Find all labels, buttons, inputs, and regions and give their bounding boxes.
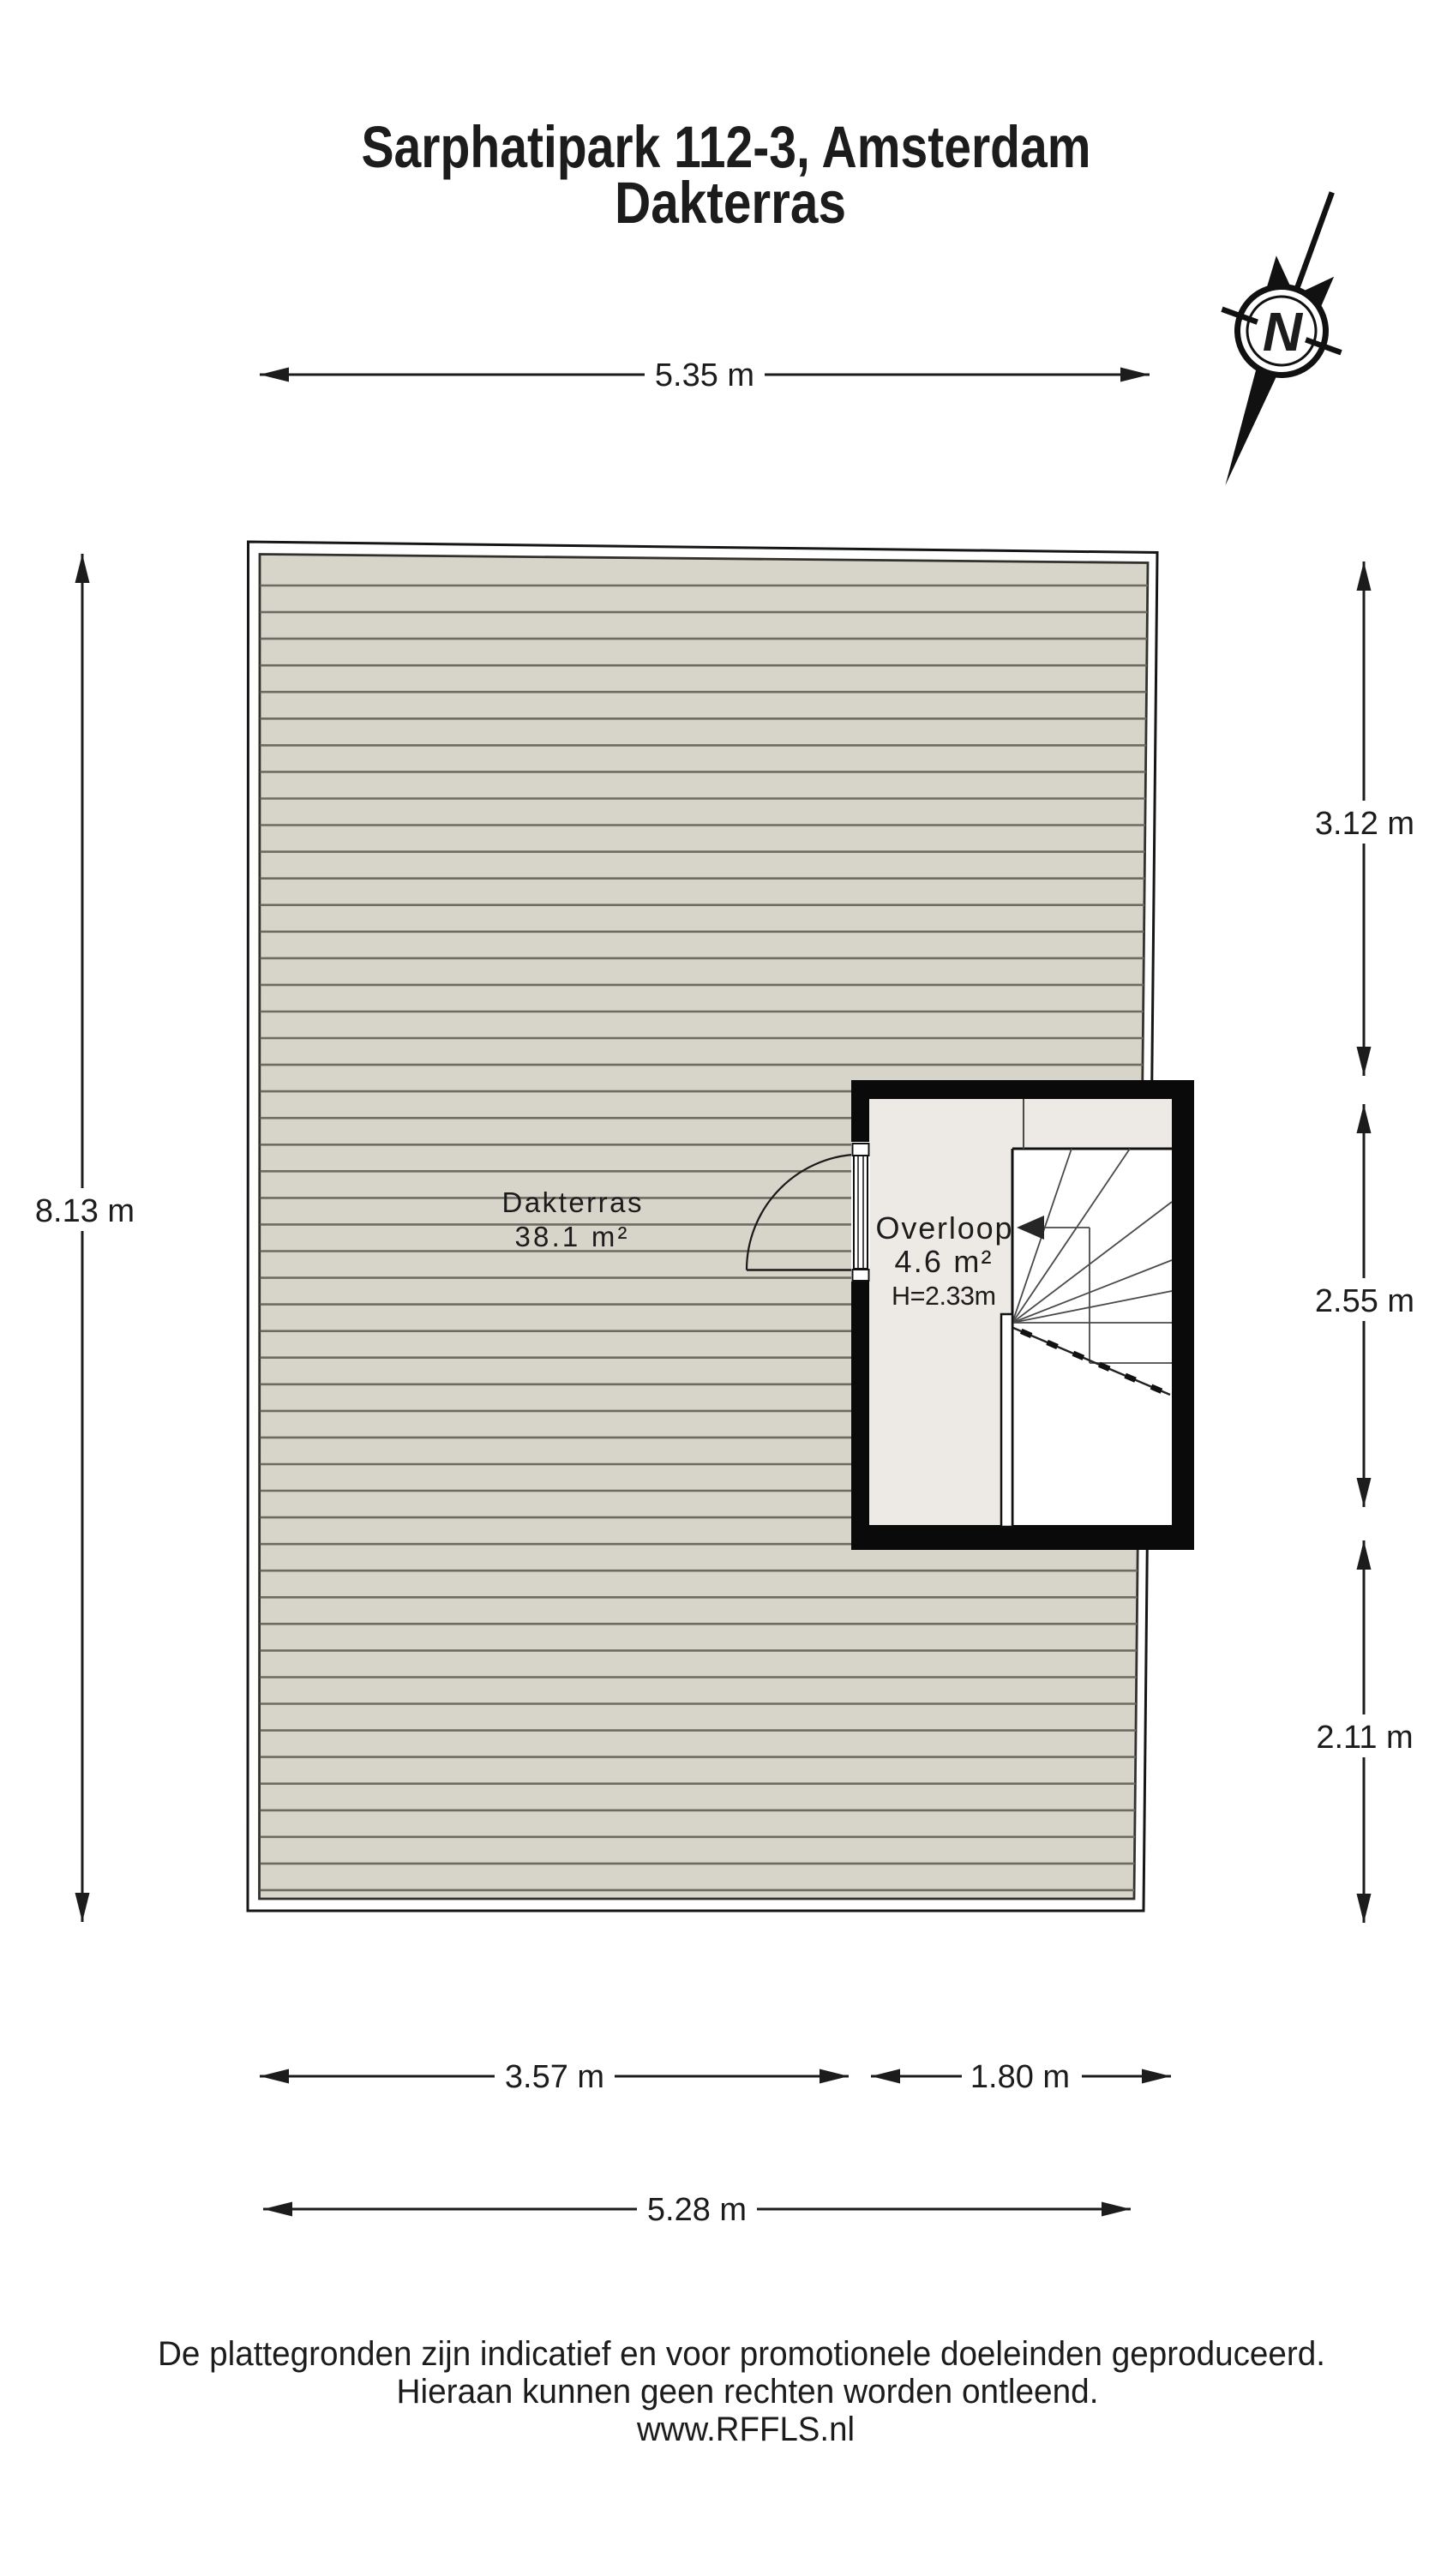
svg-text:3.12 m: 3.12 m (1315, 806, 1414, 842)
svg-text:2.11 m: 2.11 m (1316, 1720, 1413, 1756)
svg-text:2.55 m: 2.55 m (1315, 1283, 1414, 1319)
svg-text:Hieraan kunnen geen rechten wo: Hieraan kunnen geen rechten worden ontle… (397, 2373, 1099, 2411)
svg-text:Dakterras: Dakterras (615, 170, 846, 236)
svg-text:H=2.33m: H=2.33m (892, 1282, 996, 1311)
svg-text:5.28 m: 5.28 m (647, 2192, 747, 2228)
svg-text:4.6 m²: 4.6 m² (895, 1244, 992, 1279)
svg-text:N: N (1263, 301, 1304, 363)
svg-text:8.13 m: 8.13 m (35, 1193, 135, 1229)
svg-text:www.RFFLS.nl: www.RFFLS.nl (636, 2411, 855, 2448)
svg-text:1.80 m: 1.80 m (970, 2059, 1070, 2095)
svg-text:5.35 m: 5.35 m (655, 357, 754, 393)
svg-text:De plattegronden zijn indicati: De plattegronden zijn indicatief en voor… (158, 2335, 1325, 2373)
svg-text:Overloop: Overloop (876, 1210, 1012, 1246)
svg-text:3.57 m: 3.57 m (505, 2059, 604, 2095)
